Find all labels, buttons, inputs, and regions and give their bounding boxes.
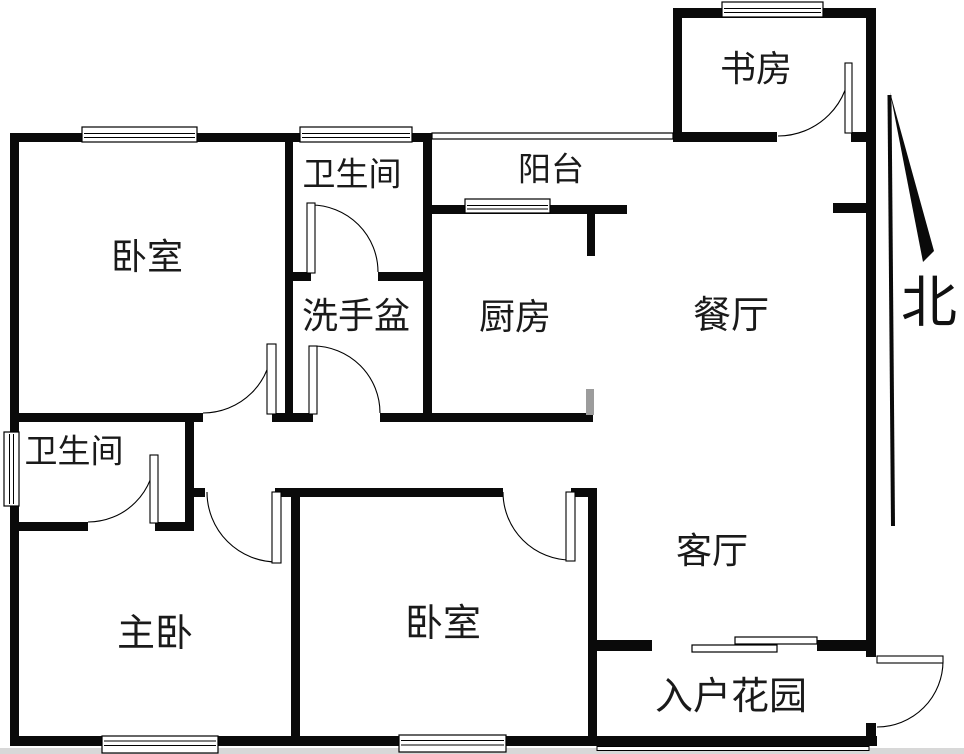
room-label-kitchen: 厨房 <box>479 300 551 336</box>
door-washbasin <box>309 346 380 414</box>
doors <box>88 63 943 727</box>
wall-living-bottom-a <box>597 640 652 651</box>
sliding-door <box>692 637 817 652</box>
wall-bedroom2-east <box>588 488 597 740</box>
wall-study-left <box>673 8 682 140</box>
window-kitchen <box>465 199 550 213</box>
room-label-bathroom-west: 卫生间 <box>25 435 124 468</box>
balcony-railing <box>432 133 673 139</box>
window-bathroom-north <box>300 127 412 142</box>
wall-corridor-top-b <box>272 413 313 422</box>
door-bedroom-south <box>503 492 575 561</box>
door-entry <box>877 656 943 727</box>
window-study <box>722 2 823 17</box>
window-bedroom-north <box>82 127 197 142</box>
room-label-bedroom-south: 卧室 <box>405 604 481 642</box>
room-label-study: 书房 <box>720 52 792 88</box>
wall-kitchen-stub <box>587 213 595 256</box>
wall-study-bottom-right <box>851 132 876 142</box>
window-bedroom-south <box>399 735 506 752</box>
north-label: 北 <box>901 276 957 332</box>
wall-master-east <box>291 488 300 736</box>
wall-study-bottom-left <box>673 132 777 142</box>
door-bedroom-north <box>203 344 276 414</box>
wall-corridor-bottom-b <box>275 488 503 497</box>
wall-bathwest-east <box>185 421 194 531</box>
wall-bathwest-bottom-b <box>155 522 194 531</box>
floor-plan: 卧室 卫生间 洗手盆 阳台 厨房 餐厅 书房 卫生间 主卧 卧室 客厅 入户花园… <box>0 0 964 754</box>
wall-washbasin-east <box>423 141 432 422</box>
window-master-bedroom <box>102 736 218 753</box>
room-label-balcony: 阳台 <box>518 153 584 186</box>
wall-right-outer-lower <box>866 723 876 746</box>
room-label-dining: 餐厅 <box>693 296 769 334</box>
door-bathroom-north <box>307 203 378 273</box>
wall-right-outer-upper <box>866 8 876 657</box>
room-label-bedroom-north: 卧室 <box>111 240 183 276</box>
wall-corridor-top-c <box>380 413 593 422</box>
window-bathroom-west <box>4 432 19 506</box>
room-label-living: 客厅 <box>676 534 748 570</box>
wall-gray-stub <box>586 389 594 415</box>
room-label-entry-garden: 入户花园 <box>655 677 807 715</box>
wall-living-bottom-b <box>817 640 868 651</box>
wall-dining-stub <box>833 203 873 213</box>
room-label-bathroom-north: 卫生间 <box>303 158 402 191</box>
entry-garden-step-line <box>597 747 869 751</box>
door-master-bedroom <box>207 492 281 563</box>
wall-bathwest-bottom-a <box>10 522 88 531</box>
room-label-washbasin: 洗手盆 <box>302 299 410 335</box>
room-label-master-bedroom: 主卧 <box>117 614 193 652</box>
wall-corridor-top-a <box>10 413 203 422</box>
